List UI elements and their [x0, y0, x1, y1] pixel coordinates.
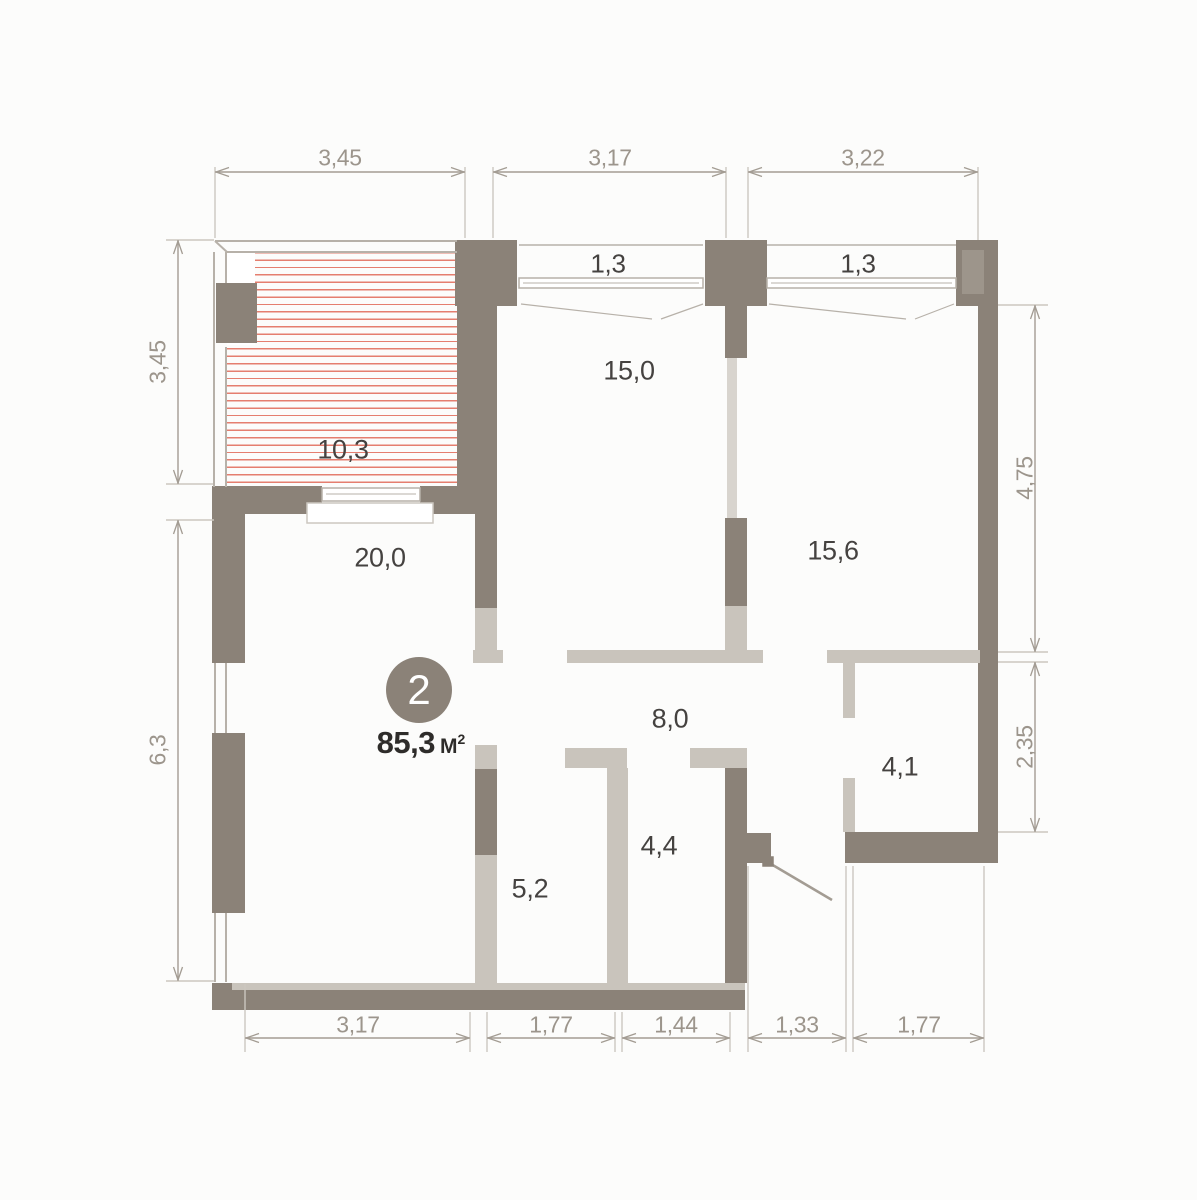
dimension-label-top-2: 3,17 [588, 145, 632, 172]
window-width-label-right: 1,3 [840, 249, 875, 280]
window-width-label-left: 1,3 [590, 249, 625, 280]
dimension-label-bottom-3: 1,44 [654, 1012, 698, 1039]
unit-number-badge: 2 [386, 657, 452, 723]
floor-plan-canvas: 3,45 3,17 3,22 3,17 1,77 1,44 1,33 1,77 … [0, 0, 1197, 1200]
unit-area-value: 85,3 [377, 725, 435, 760]
dimension-label-right-1: 4,75 [1012, 456, 1039, 500]
room-area-label-top-middle: 15,0 [603, 356, 654, 387]
dimension-label-right-2: 2,35 [1012, 725, 1039, 769]
room-area-label-balcony: 10,3 [317, 435, 368, 466]
entrance-door-hinge [763, 857, 773, 866]
dimension-label-top-3: 3,22 [841, 145, 885, 172]
room-area-label-bottom-small: 5,2 [512, 874, 549, 905]
room-area-label-hallway: 8,0 [652, 704, 689, 735]
entrance-door-leaf [771, 864, 832, 900]
unit-area-unit: М [440, 735, 458, 758]
plan-linework [0, 0, 1197, 1200]
dimension-label-bottom-4: 1,33 [775, 1012, 819, 1039]
dimension-label-left-1: 3,45 [145, 340, 172, 384]
dimension-label-bottom-2: 1,77 [529, 1012, 573, 1039]
room-area-label-left: 20,0 [354, 543, 405, 574]
window-opening-chevron [521, 304, 652, 319]
window-opening-chevron [769, 304, 906, 319]
unit-number: 2 [407, 669, 430, 711]
dimension-label-bottom-5: 1,77 [897, 1012, 941, 1039]
balcony-glazing-line [215, 241, 227, 252]
balcony-window-sill [307, 503, 433, 523]
dimension-label-left-2: 6,3 [145, 734, 172, 765]
window-opening-chevron [661, 304, 703, 319]
unit-area-unit-sup: 2 [458, 731, 466, 747]
dimension-label-bottom-1: 3,17 [336, 1012, 380, 1039]
dimension-label-top-1: 3,45 [318, 145, 362, 172]
room-area-label-right-small: 4,1 [882, 752, 919, 783]
unit-total-area: 85,3М2 [377, 725, 466, 761]
room-area-label-mid-small: 4,4 [641, 831, 678, 862]
window-opening-chevron [915, 304, 954, 319]
room-area-label-top-right: 15,6 [807, 536, 858, 567]
